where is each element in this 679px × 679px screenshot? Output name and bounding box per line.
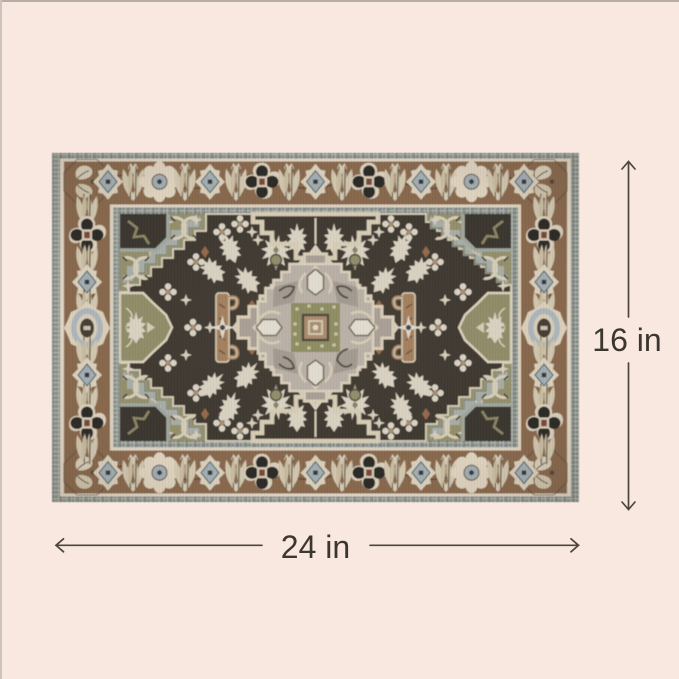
svg-text:16 in: 16 in <box>592 322 661 358</box>
svg-text:24 in: 24 in <box>281 529 350 565</box>
